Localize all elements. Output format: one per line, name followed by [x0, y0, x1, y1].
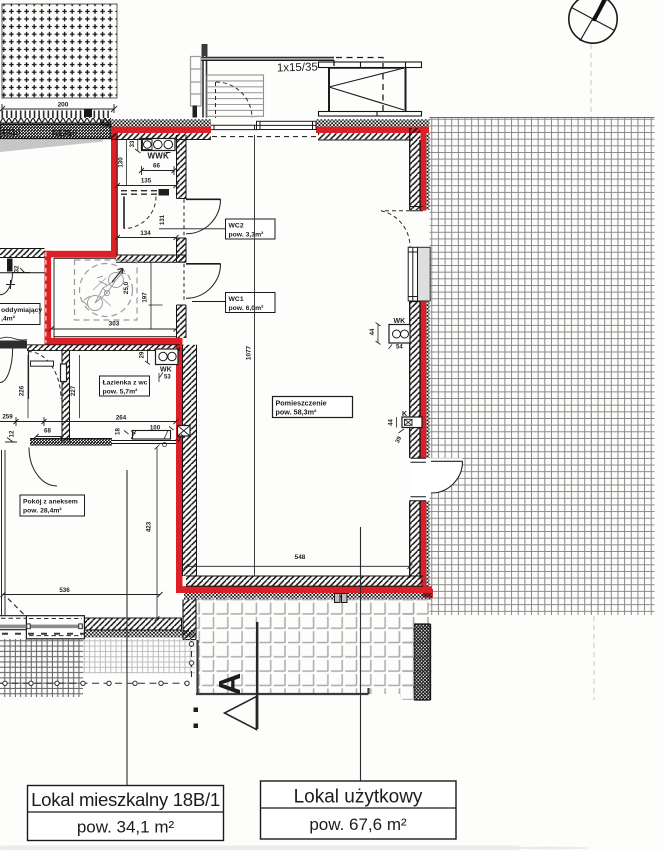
svg-text:423: 423	[146, 521, 153, 532]
svg-text:264: 264	[116, 415, 127, 422]
svg-text:pow. 34,1 m²: pow. 34,1 m²	[77, 818, 175, 837]
svg-text:,4m²: ,4m²	[1, 316, 16, 323]
svg-text:Lokal mieszkalny 18B/1: Lokal mieszkalny 18B/1	[31, 789, 220, 810]
svg-text:536: 536	[59, 587, 70, 594]
svg-text:pow. 58,3m²: pow. 58,3m²	[276, 408, 317, 417]
svg-text:33: 33	[130, 140, 136, 147]
svg-text:54: 54	[396, 345, 403, 351]
svg-text:pow. 67,6 m²: pow. 67,6 m²	[309, 815, 407, 834]
svg-text:EI30: EI30	[2, 128, 21, 138]
svg-text:1x15/35: 1x15/35	[277, 61, 318, 74]
svg-text:66: 66	[153, 163, 160, 170]
svg-text:44: 44	[389, 419, 395, 426]
svg-text:WWK: WWK	[148, 152, 170, 161]
svg-text:Pomieszczenie: Pomieszczenie	[276, 399, 327, 408]
svg-text:pow. 5,7m²: pow. 5,7m²	[103, 389, 139, 396]
svg-text:WC1: WC1	[229, 296, 244, 303]
svg-text:227: 227	[70, 385, 77, 396]
svg-text:12: 12	[9, 430, 16, 437]
svg-text:135: 135	[141, 178, 152, 185]
svg-text:134: 134	[140, 230, 151, 237]
svg-text:pow. 3,3m²: pow. 3,3m²	[229, 232, 265, 239]
svg-text:200: 200	[58, 102, 69, 109]
svg-text:pow. 6,0m²: pow. 6,0m²	[229, 305, 265, 312]
svg-text:303: 303	[109, 321, 120, 328]
svg-text:32: 32	[15, 265, 21, 272]
svg-text:Lokal użytkowy: Lokal użytkowy	[294, 787, 423, 808]
svg-text:53: 53	[164, 375, 171, 381]
svg-text:131: 131	[160, 214, 166, 225]
svg-text:44: 44	[370, 328, 376, 335]
svg-text:A: A	[212, 673, 247, 695]
svg-text:18: 18	[115, 428, 122, 435]
svg-text:Pokój z aneksem: Pokój z aneksem	[23, 499, 78, 506]
svg-text:29: 29	[140, 351, 146, 358]
svg-text:130: 130	[118, 157, 125, 168]
svg-text:259: 259	[2, 414, 13, 421]
svg-text:REI60: REI60	[52, 128, 77, 138]
svg-text:WK: WK	[394, 318, 406, 325]
svg-text:oddymiający: oddymiający	[1, 307, 42, 314]
svg-text:K: K	[402, 411, 407, 418]
svg-text:197: 197	[142, 292, 149, 303]
svg-text:Łazienka z wc: Łazienka z wc	[103, 380, 148, 387]
svg-text:68: 68	[44, 428, 51, 435]
svg-text:25,0: 25,0	[123, 281, 130, 294]
svg-text:WC2: WC2	[229, 223, 244, 230]
svg-text:WK: WK	[160, 367, 172, 374]
svg-text:226: 226	[19, 385, 26, 396]
svg-text:548: 548	[295, 554, 306, 561]
svg-text:100: 100	[150, 425, 161, 432]
svg-text:pow. 28,4m²: pow. 28,4m²	[23, 508, 62, 515]
svg-text:1077: 1077	[246, 345, 253, 360]
